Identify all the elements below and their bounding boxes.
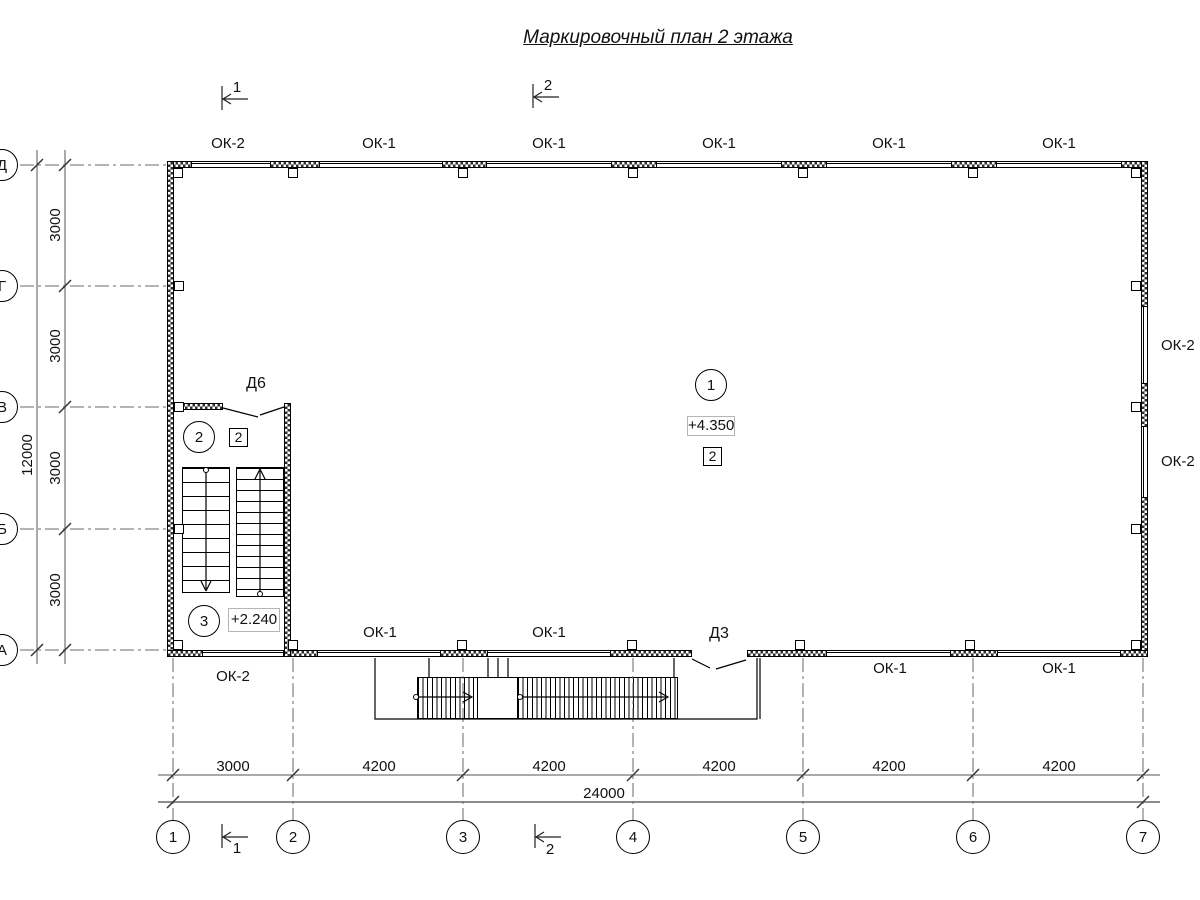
window-label-bottom-outside-1: ОК-2 — [208, 668, 258, 685]
window-top-ok2 — [192, 161, 270, 168]
window-label-top-5: ОК-1 — [864, 135, 914, 152]
wall-bottom-pier — [440, 650, 488, 657]
window-bottom-ok1 — [998, 650, 1120, 657]
window-bottom-ok1 — [827, 650, 950, 657]
wall-top-pier — [781, 161, 827, 168]
axis-bubble-row-g: Г — [0, 270, 18, 302]
column-marker — [968, 168, 978, 178]
axis-bubble-col-6: 6 — [956, 820, 990, 854]
dim-left-seg-3: 3000 — [47, 438, 61, 498]
window-label-top-6: ОК-1 — [1034, 135, 1084, 152]
column-marker — [1131, 524, 1141, 534]
window-label-top-2: ОК-1 — [354, 135, 404, 152]
door-label-d3: Д3 — [699, 625, 739, 643]
wall-stairwell-right — [284, 403, 291, 657]
window-label-top-4: ОК-1 — [694, 135, 744, 152]
dim-bottom-seg-3: 4200 — [519, 758, 579, 775]
elevation-label-room-3: +2.240 — [228, 608, 280, 632]
wall-bottom-pier — [167, 650, 203, 657]
window-right-ok2 — [1141, 427, 1148, 497]
drawing-title: Маркировочный план 2 этажа — [458, 27, 858, 49]
axis-bubble-row-d: Д — [0, 149, 18, 181]
dim-bottom-seg-1: 3000 — [203, 758, 263, 775]
window-label-bottom-outside-3: ОК-1 — [1034, 660, 1084, 677]
column-marker — [174, 524, 184, 534]
exterior-stair-run-1 — [417, 677, 478, 719]
column-marker — [628, 168, 638, 178]
window-label-top-3: ОК-1 — [524, 135, 574, 152]
window-top-ok1 — [997, 161, 1121, 168]
column-marker — [795, 640, 805, 650]
column-marker — [288, 168, 298, 178]
column-marker — [174, 281, 184, 291]
column-marker — [288, 640, 298, 650]
dim-left-seg-2: 3000 — [47, 316, 61, 376]
room-number-2: 2 — [183, 421, 215, 453]
section-mark-1-bottom: 1 — [229, 840, 245, 857]
window-bottom-ok2 — [203, 650, 283, 657]
axis-bubble-col-7: 7 — [1126, 820, 1160, 854]
wall-right-pier — [1141, 383, 1148, 427]
window-bottom-ok1 — [488, 650, 610, 657]
window-label-bottom-inside-2: ОК-1 — [524, 624, 574, 641]
window-label-right-2: ОК-2 — [1161, 453, 1195, 470]
dim-bottom-seg-2: 4200 — [349, 758, 409, 775]
window-top-ok1 — [827, 161, 951, 168]
axis-bubble-col-1: 1 — [156, 820, 190, 854]
axis-bubble-col-4: 4 — [616, 820, 650, 854]
window-label-bottom-inside-1: ОК-1 — [355, 624, 405, 641]
column-marker — [1131, 640, 1141, 650]
column-marker — [798, 168, 808, 178]
floor-plan-canvas: Маркировочный план 2 этажа — [0, 0, 1200, 900]
column-marker — [458, 168, 468, 178]
wall-bottom-pier — [747, 650, 827, 657]
column-marker — [1131, 168, 1141, 178]
door-label-d6: Д6 — [236, 375, 276, 393]
section-mark-2-top: 2 — [540, 77, 556, 94]
window-top-ok1 — [320, 161, 442, 168]
axis-bubble-row-a: А — [0, 634, 18, 666]
finish-type-room-1: 2 — [703, 447, 722, 466]
finish-type-room-2: 2 — [229, 428, 248, 447]
axis-bubble-col-2: 2 — [276, 820, 310, 854]
exterior-stair-run-2 — [517, 677, 678, 719]
dim-bottom-seg-6: 4200 — [1029, 758, 1089, 775]
column-marker — [1131, 281, 1141, 291]
room-number-1: 1 — [695, 369, 727, 401]
wall-right-pier — [1141, 161, 1148, 307]
window-top-ok1 — [487, 161, 611, 168]
column-marker — [965, 640, 975, 650]
wall-bottom-pier — [610, 650, 692, 657]
wall-top-pier — [611, 161, 657, 168]
column-marker — [173, 640, 183, 650]
dim-bottom-seg-4: 4200 — [689, 758, 749, 775]
axis-bubble-row-b: Б — [0, 513, 18, 545]
wall-top-pier — [951, 161, 997, 168]
column-marker — [173, 168, 183, 178]
dim-left-total: 12000 — [19, 420, 33, 490]
stair-flight-down — [182, 467, 230, 593]
window-top-ok1 — [657, 161, 781, 168]
wall-bottom-pier — [950, 650, 998, 657]
wall-bottom-pier — [1120, 650, 1148, 657]
section-mark-1-top: 1 — [229, 79, 245, 96]
window-label-bottom-outside-2: ОК-1 — [865, 660, 915, 677]
axis-bubble-row-v: В — [0, 391, 18, 423]
column-marker — [1131, 402, 1141, 412]
elevation-label-room-1: +4.350 — [687, 416, 735, 436]
wall-top-pier — [442, 161, 487, 168]
column-marker — [627, 640, 637, 650]
wall-right-pier — [1141, 497, 1148, 657]
dim-left-seg-1: 3000 — [47, 195, 61, 255]
window-right-ok2 — [1141, 307, 1148, 383]
window-bottom-ok1 — [318, 650, 440, 657]
section-mark-2-bottom: 2 — [542, 841, 558, 858]
exterior-stair-landing — [477, 677, 518, 719]
dim-bottom-seg-5: 4200 — [859, 758, 919, 775]
plan-linework — [0, 0, 1200, 900]
window-label-right-1: ОК-2 — [1161, 337, 1195, 354]
axis-bubble-col-5: 5 — [786, 820, 820, 854]
dim-left-seg-4: 3000 — [47, 560, 61, 620]
column-marker — [457, 640, 467, 650]
column-marker — [174, 402, 184, 412]
window-label-top-1: ОК-2 — [203, 135, 253, 152]
wall-left — [167, 161, 174, 657]
dim-bottom-total: 24000 — [574, 785, 634, 802]
wall-top-pier — [270, 161, 320, 168]
stair-flight-up — [236, 467, 284, 597]
axis-bubble-col-3: 3 — [446, 820, 480, 854]
room-number-3: 3 — [188, 605, 220, 637]
